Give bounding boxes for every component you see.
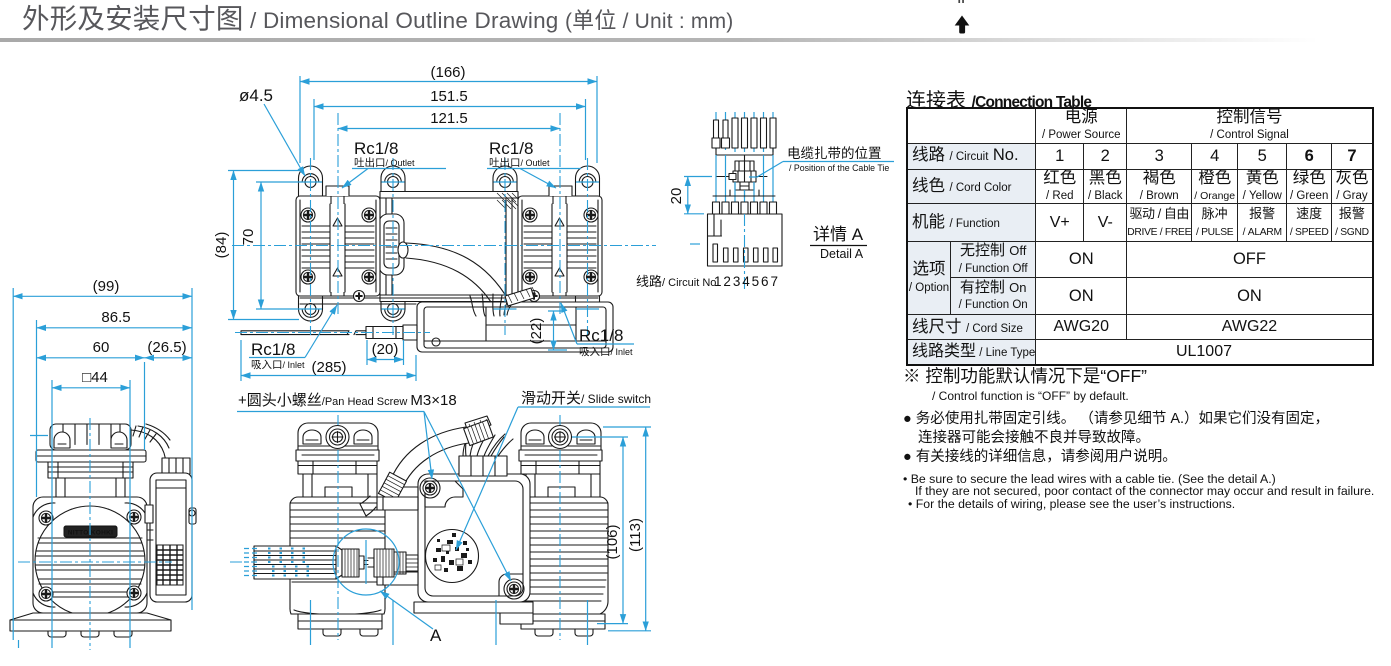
svg-text:ø4.5: ø4.5	[239, 86, 273, 105]
svg-text:(22): (22)	[528, 318, 545, 345]
svg-text:86.5: 86.5	[101, 309, 130, 326]
svg-text:(20): (20)	[372, 341, 399, 358]
svg-text:Rc1/8: Rc1/8	[489, 139, 533, 158]
svg-text:60: 60	[93, 339, 110, 356]
svg-text:(285): (285)	[311, 359, 346, 376]
svg-text:□44: □44	[82, 369, 108, 386]
svg-text:吐出口/ Outlet: 吐出口/ Outlet	[489, 156, 550, 169]
svg-text:(113): (113)	[627, 518, 644, 552]
svg-text:Rc1/8: Rc1/8	[354, 139, 398, 158]
svg-text:吸入口/ Inlet: 吸入口/ Inlet	[579, 346, 633, 358]
svg-text:(166): (166)	[430, 64, 465, 81]
svg-text:/ Position of the Cable Tie: / Position of the Cable Tie	[789, 163, 889, 173]
svg-text:Rc1/8: Rc1/8	[579, 326, 623, 345]
svg-text:吐出口/ Outlet: 吐出口/ Outlet	[354, 156, 415, 169]
svg-text:详情 A: 详情 A	[813, 225, 864, 244]
svg-text:(26.5): (26.5)	[147, 339, 186, 356]
svg-text:151.5: 151.5	[430, 88, 468, 105]
svg-text:滑动开关/ Slide switch: 滑动开关/ Slide switch	[521, 390, 651, 407]
svg-text:+圆头小螺丝/Pan Head Screw M3×18: +圆头小螺丝/Pan Head Screw M3×18	[238, 392, 457, 409]
svg-text:Detail A: Detail A	[820, 247, 864, 261]
svg-text:(99): (99)	[93, 278, 120, 295]
svg-text:(106): (106)	[604, 524, 621, 559]
svg-text:(84): (84)	[213, 232, 230, 259]
svg-text:线路/ Circuit No.: 线路/ Circuit No.	[636, 274, 719, 289]
svg-text:121.5: 121.5	[430, 110, 468, 127]
svg-text:Rc1/8: Rc1/8	[251, 340, 295, 359]
svg-text:A: A	[430, 626, 442, 645]
svg-text:70: 70	[240, 229, 257, 246]
svg-text:1234567: 1234567	[714, 274, 780, 289]
svg-text:20: 20	[668, 188, 685, 205]
svg-text:电缆扎带的位置: 电缆扎带的位置	[787, 146, 882, 161]
svg-text:吸入口/ Inlet: 吸入口/ Inlet	[251, 359, 305, 371]
